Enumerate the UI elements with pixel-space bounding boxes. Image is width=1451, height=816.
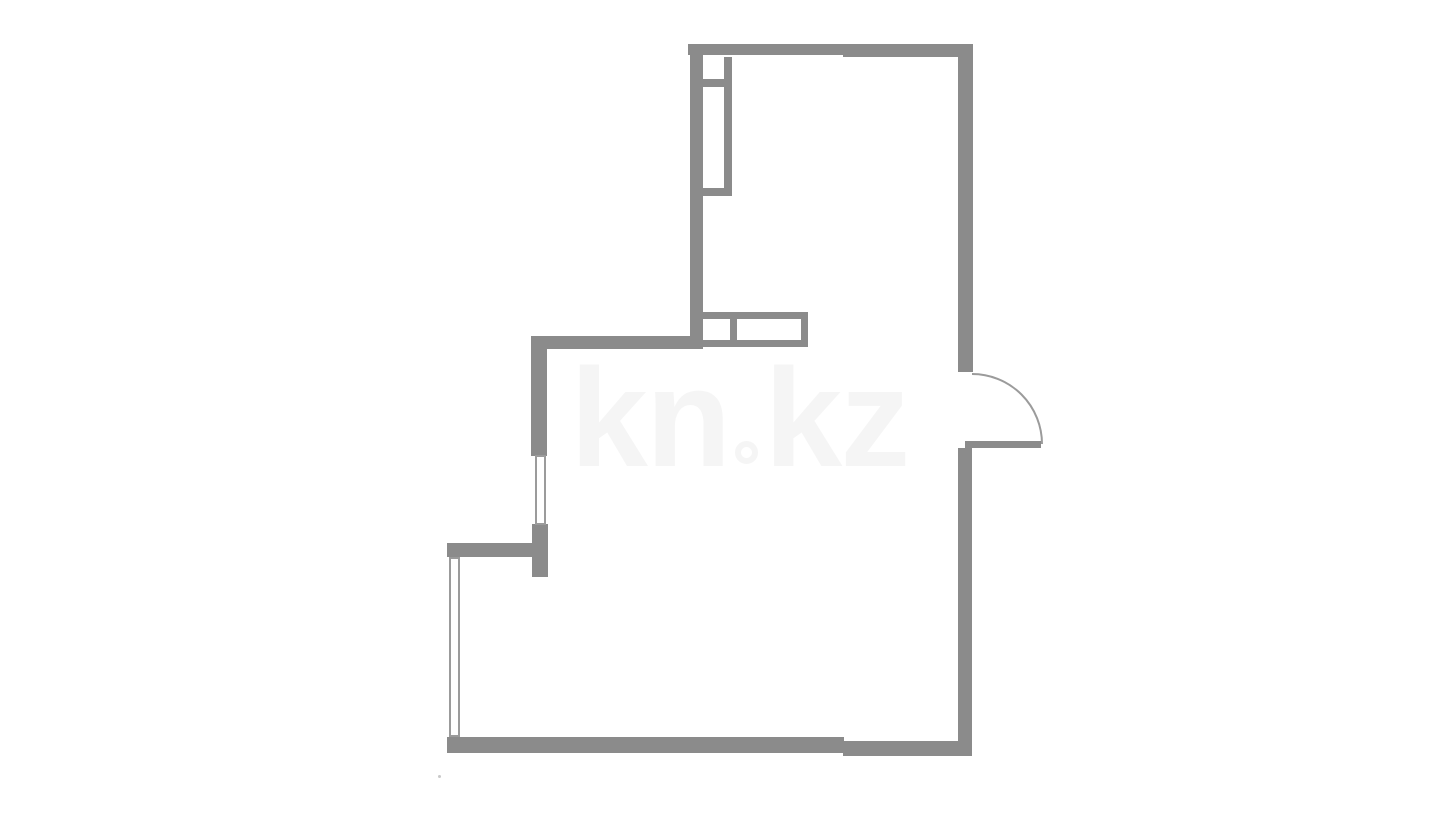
watermark-text-kn: kn <box>570 339 729 496</box>
mid-horizontal-wall <box>531 336 703 349</box>
shaft-divider <box>703 79 724 87</box>
bottom-wall-left-segment <box>447 737 844 753</box>
right-wall-upper <box>958 44 973 372</box>
watermark-text-kz: kz <box>764 339 908 496</box>
lower-window <box>449 557 460 737</box>
lower-left-horizontal-wall <box>447 543 533 557</box>
door-arc-path <box>972 374 1042 444</box>
floorplan-canvas: knkz <box>0 0 1451 816</box>
top-wall-right-segment <box>843 44 973 57</box>
corner-mark-dot <box>438 775 441 778</box>
left-wall-above-upper-window <box>531 336 547 456</box>
top-wall-left-segment <box>688 44 845 55</box>
door-leaf <box>965 441 1041 448</box>
shaft-right-edge <box>724 57 732 196</box>
watermark: knkz <box>570 348 908 488</box>
left-wall-below-upper-window <box>532 524 548 577</box>
bottom-wall-right-segment <box>843 741 972 756</box>
left-wall-upper <box>690 44 703 349</box>
upper-window <box>535 455 546 525</box>
watermark-dot-icon <box>735 441 758 464</box>
cabinet-top-edge <box>700 312 808 319</box>
shaft-bottom-edge <box>703 188 724 196</box>
right-wall-lower <box>958 448 972 756</box>
cabinet-bottom-edge <box>703 340 808 347</box>
